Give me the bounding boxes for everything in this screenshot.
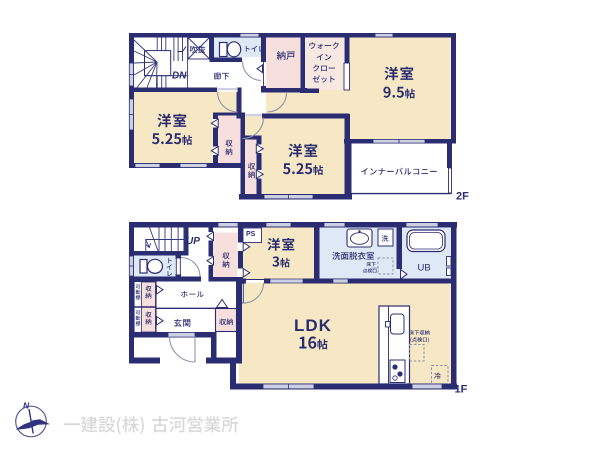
svg-text:DN: DN [172, 71, 187, 82]
svg-text:PS: PS [246, 231, 256, 238]
svg-text:2F: 2F [456, 191, 469, 203]
svg-text:N: N [23, 401, 30, 411]
svg-text:UP: UP [186, 236, 200, 247]
svg-text:LDK: LDK [294, 316, 332, 335]
svg-text:UB: UB [418, 263, 431, 274]
svg-text:1F: 1F [455, 384, 468, 396]
